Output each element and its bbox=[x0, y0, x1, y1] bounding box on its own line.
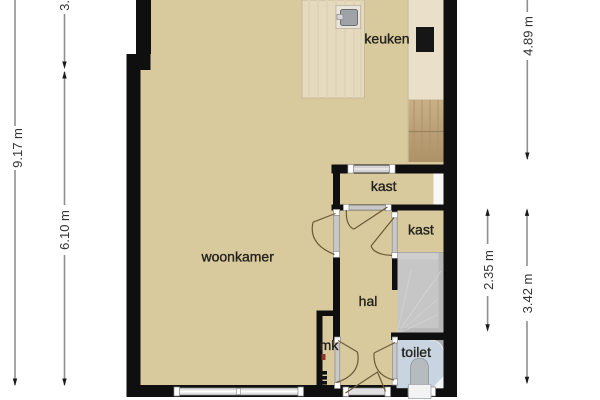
svg-text:3.42 m: 3.42 m bbox=[520, 274, 535, 314]
svg-text:kast: kast bbox=[371, 178, 397, 194]
svg-text:2.35 m: 2.35 m bbox=[481, 250, 496, 290]
svg-text:woonkamer: woonkamer bbox=[201, 249, 275, 265]
svg-text:3.07 m: 3.07 m bbox=[57, 0, 72, 11]
svg-text:9.17 m: 9.17 m bbox=[10, 128, 25, 168]
svg-text:toilet: toilet bbox=[401, 344, 431, 360]
svg-text:kast: kast bbox=[408, 222, 434, 238]
svg-text:6.10 m: 6.10 m bbox=[57, 210, 72, 250]
svg-text:4.89 m: 4.89 m bbox=[521, 16, 536, 56]
svg-text:mk: mk bbox=[320, 337, 340, 353]
svg-text:hal: hal bbox=[359, 293, 378, 309]
svg-text:keuken: keuken bbox=[364, 31, 409, 47]
